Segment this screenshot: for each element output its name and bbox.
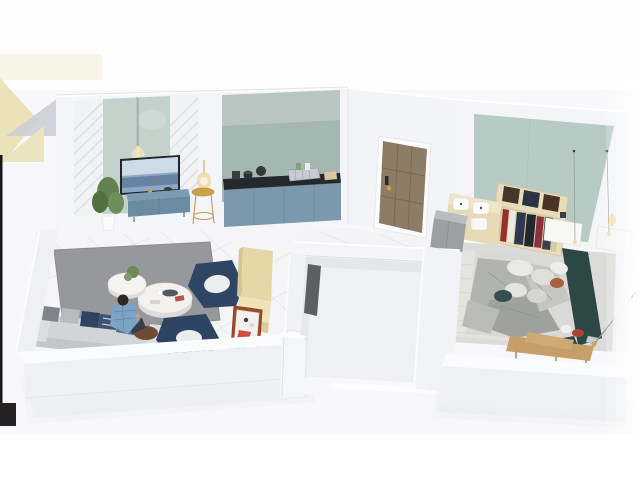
dish-green [296, 163, 301, 170]
cutting-board [324, 171, 337, 180]
dark-cushion [494, 290, 512, 302]
fade-band-2 [616, 80, 625, 480]
coffee-machine [232, 171, 240, 179]
plant-foliage-2 [92, 191, 108, 213]
background-bottom-strip [0, 434, 640, 480]
kitchen-backsplash-sheen [222, 90, 340, 126]
wardrobe-box-1 [502, 186, 520, 204]
wardrobe-box-3 [542, 194, 560, 212]
black-edge-strip [0, 155, 3, 425]
drawer-handle-1 [460, 203, 462, 205]
door-shadow-notch [385, 176, 389, 185]
person-hand [136, 314, 140, 318]
table-cup [158, 291, 163, 296]
table-plant-2 [124, 273, 132, 281]
wardrobe-box-2 [522, 190, 540, 208]
sofa-pillow-gray-dark [42, 306, 60, 322]
person-head [118, 295, 129, 306]
sage-panel-highlight [138, 110, 166, 130]
nightstand-left-decor [560, 212, 566, 218]
table-tray [162, 290, 178, 297]
decor-gold-dot [148, 189, 152, 193]
floorplan-render [0, 0, 640, 480]
logo-cream-band [0, 54, 102, 80]
bench-back [241, 247, 273, 303]
floor-lamp-head [592, 342, 597, 347]
black-corner-square [0, 403, 16, 426]
pillow-orange [550, 278, 564, 288]
pillow-4 [527, 289, 547, 303]
fade-band-3 [625, 80, 633, 480]
white-roll [561, 325, 572, 333]
drawer-handle-2 [480, 207, 482, 209]
plant-foliage-3 [108, 192, 124, 214]
dish-white [305, 163, 310, 170]
table-cup-dark [244, 318, 248, 322]
plant-pot [102, 216, 115, 230]
sofa-pillow-gray-light [60, 308, 80, 324]
fade-band-4 [633, 80, 640, 480]
drawer-box-4 [471, 218, 487, 230]
decor-dark-object [164, 187, 172, 191]
kettle [256, 166, 266, 176]
table-dish [249, 323, 255, 327]
pendant-wire-1-bulb [573, 240, 577, 244]
red-cloth [572, 329, 584, 337]
floorplan-svg [0, 0, 640, 480]
fade-band-1 [606, 80, 616, 480]
table-lamp-core [200, 177, 208, 185]
sofa-pillow-navy [80, 311, 100, 328]
pendant-wire-1-mount [573, 150, 576, 153]
table-books [150, 300, 160, 304]
pot-lid [244, 171, 253, 174]
right-fade [606, 80, 640, 480]
gray-storage-cabinet [430, 210, 468, 254]
kitchen-cabinets [224, 183, 341, 227]
entry-door [379, 141, 427, 233]
door-handle [387, 186, 391, 190]
